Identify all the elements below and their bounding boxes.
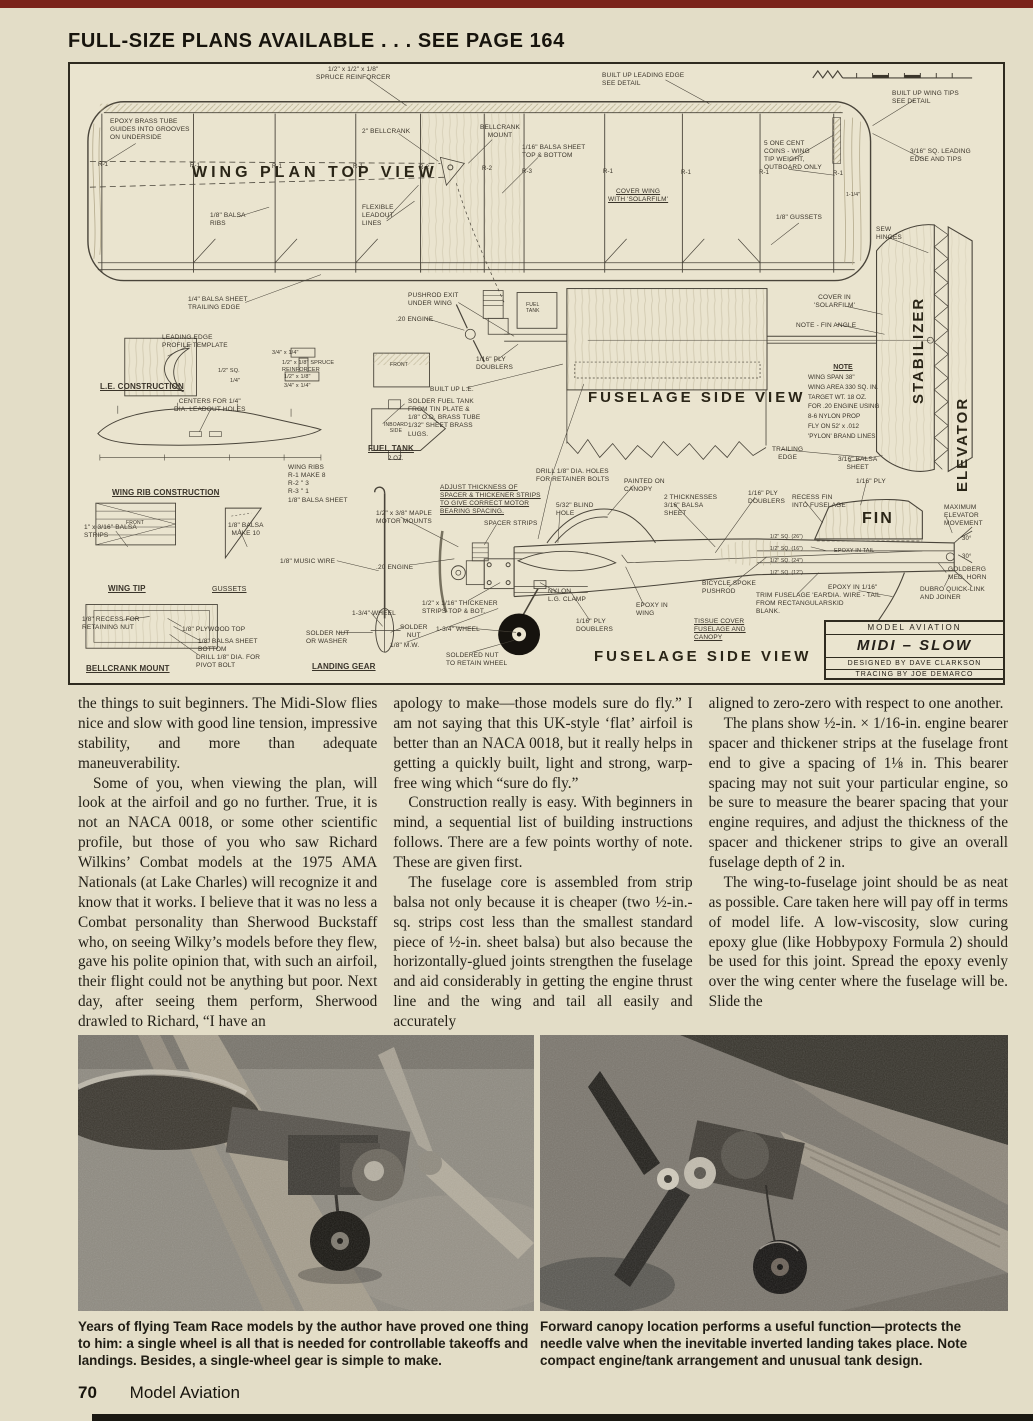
plan-label: R-1 [681, 170, 691, 178]
plan-label: NYLON L.G. CLAMP [548, 588, 586, 604]
plan-label: CENTERS FOR 1/4" DIA. LEADOUT HOLES [174, 398, 246, 414]
paragraph: The wing-to-fuselage joint should be as … [709, 873, 1008, 1012]
plan-label: L.E. CONSTRUCTION [100, 382, 184, 392]
plan-label: FRONT [390, 362, 408, 368]
page-footer: 70 Model Aviation [78, 1383, 240, 1403]
plan-label: 1/2" x 1/8" SPRUCE REINFORCER [282, 360, 334, 374]
page-number: 70 [78, 1383, 97, 1402]
plan-label: 5/32" BLIND HOLE [556, 502, 594, 518]
plan-label: R-3 [522, 169, 532, 177]
plan-label: .20 ENGINE [376, 564, 413, 572]
plan-label: R-1 [353, 164, 363, 172]
plan-label: R-1 [190, 163, 200, 171]
plan-label: BUILT UP L.E. [430, 386, 474, 394]
plan-label: WING RIB CONSTRUCTION [112, 488, 220, 498]
plan-label: 1/2" SQ. (16") [770, 546, 803, 552]
wing-plan-title: WING PLAN TOP VIEW [192, 164, 438, 182]
plan-label: SOLDERED NUT TO RETAIN WHEEL [446, 652, 507, 668]
plan-label: 1/2" x 1/16" THICKENER STRIPS TOP & BOT. [422, 600, 498, 616]
plan-label: 30° [962, 554, 972, 562]
elevator-label: ELEVATOR [954, 397, 971, 492]
plan-label: 1/2" x 1/8" [284, 374, 311, 381]
plan-label: SOLDER NUT OR WASHER [306, 630, 349, 646]
plan-annotation-layer: WING PLAN TOP VIEW FUSELAGE SIDE VIEW FU… [70, 64, 1003, 683]
plan-label: 1/8" MUSIC WIRE [280, 558, 335, 566]
article-body: the things to suit beginners. The Midi-S… [78, 694, 1008, 1032]
plan-label: DUBRO QUICK-LINK AND JOINER [920, 586, 985, 602]
article-column-1: the things to suit beginners. The Midi-S… [78, 694, 377, 1032]
plan-label: 1/8" BALSA RIBS [210, 212, 246, 228]
paragraph: the things to suit beginners. The Midi-S… [78, 694, 377, 774]
plan-label: SOLDER FUEL TANK FROM TIN PLATE & 1/8" O… [408, 398, 480, 439]
paragraph: Some of you, when viewing the plan, will… [78, 774, 377, 1032]
plan-label: BUILT UP WING TIPS SEE DETAIL [892, 90, 959, 106]
plan-label: 2 THICKNESSES 3/16" BALSA SHEET [664, 494, 717, 518]
title-block-designer: DESIGNED BY DAVE CLARKSON [826, 658, 1003, 670]
plan-label: INBOARD SIDE [384, 422, 408, 435]
paragraph: apology to make—those models sure do fly… [393, 694, 692, 793]
plan-label: R-1 [759, 170, 769, 178]
plan-label: 3/16" BALSA SHEET [838, 456, 877, 472]
paragraph: The fuselage core is assembled from stri… [393, 873, 692, 1032]
magazine-name: Model Aviation [130, 1383, 240, 1402]
plan-label: WING RIBS R-1 MAKE 8 R-2 " 3 R-3 " 1 1/8… [288, 464, 348, 505]
plan-label: BELLCRANK MOUNT [86, 664, 170, 674]
plan-label: SOLDER NUT [400, 624, 428, 640]
plan-label: 1/8" M.W. [390, 642, 419, 650]
fin-label: FIN [862, 510, 894, 528]
plan-label: 1-3/4" WHEEL [436, 626, 480, 634]
plan-label: 1/16" PLY [856, 478, 886, 486]
plan-label: EPOXY IN WING [636, 602, 668, 618]
plan-label: 1/8" BALSA SHEET BOTTOM [198, 638, 258, 654]
plan-label: 3/4" x 1/4" [284, 383, 311, 390]
plan-label: 2 OZ. [388, 456, 404, 464]
plan-label: 1/16" BALSA SHEET TOP & BOTTOM [522, 144, 585, 160]
plan-note-block: NOTE WING SPAN 38" WING AREA 330 SQ. IN.… [808, 364, 904, 441]
plan-label: GUSSETS [212, 586, 247, 595]
plan-label: 1/2" SQ. (24") [770, 558, 803, 564]
title-block-tracer: TRACING BY JOE DEMARCO [826, 670, 1003, 680]
plan-label: R-2 [482, 166, 492, 174]
plan-label: FLEXIBLE LEADOUT LINES [362, 204, 394, 228]
plan-label: 1/8" GUSSETS [776, 214, 822, 222]
plan-label: EPOXY BRASS TUBE GUIDES INTO GROOVES ON … [110, 118, 190, 142]
plan-label: R-1 [603, 169, 613, 177]
plan-label: 1/16" PLY DOUBLERS [476, 356, 513, 372]
paragraph: The plans show ½-in. × 1/16-in. engine b… [709, 714, 1008, 873]
plan-label: 1/2" SQ. (12") [770, 570, 803, 576]
plan-label: 1/4" [230, 378, 240, 385]
plan-label: 1/8" RECESS FOR RETAINING NUT [82, 616, 140, 632]
plan-label: COVER IN 'SOLARFILM' [814, 294, 855, 310]
photo-left [78, 1035, 534, 1316]
plan-label: 3/4" x 1/4" [272, 350, 299, 357]
plan-label: SPACER STRIPS [484, 520, 537, 528]
plan-label: 3/16" SQ. LEADING EDGE AND TIPS [910, 148, 971, 164]
plan-label: FRONT [126, 520, 144, 526]
plan-title-block: MODEL AVIATION MIDI – SLOW DESIGNED BY D… [824, 620, 1005, 680]
fuselage-side-view-lower-title: FUSELAGE SIDE VIEW [594, 648, 811, 665]
plan-label: 30° [962, 536, 972, 544]
plan-label: COVER WING WITH 'SOLARFILM' [608, 188, 668, 204]
plan-label: 1" x 3/16" BALSA STRIPS [84, 524, 137, 540]
plan-label: 1/2" SQ. (26") [770, 534, 803, 540]
photo-right [540, 1035, 1008, 1316]
stabilizer-label: STABILIZER [910, 297, 927, 404]
plan-label: TRIM FUSELAGE 'EAR' FROM RECTANGULAR BLA… [756, 592, 829, 616]
plan-label: 1-3/4" WHEEL [352, 610, 396, 618]
plan-label: 1/16" PLY DOUBLERS [576, 618, 613, 634]
plan-label: BUILT UP LEADING EDGE SEE DETAIL [602, 72, 684, 88]
plan-label: PAINTED ON CANOPY [624, 478, 665, 494]
plan-label: .20 ENGINE [396, 316, 433, 324]
plan-label: EPOXY IN TAIL [834, 548, 874, 555]
plan-label: BELLCRANK MOUNT [480, 124, 520, 140]
plan-label: FUEL TANK [368, 444, 414, 454]
plan-label: LEADING EDGE PROFILE TEMPLATE [162, 334, 228, 350]
photo-left-caption: Years of flying Team Race models by the … [78, 1318, 538, 1369]
plan-label: TISSUE COVER FUSELAGE AND CANOPY [694, 618, 746, 642]
plan-label: DRILL 1/8" DIA. FOR PIVOT BOLT [196, 654, 260, 670]
title-block-magazine: MODEL AVIATION [826, 622, 1003, 635]
page-bottom-edge [92, 1414, 1033, 1421]
plan-label: GOLDBERG MED. HORN [948, 566, 987, 582]
plan-label: SEW HINGES [876, 226, 902, 242]
plan-label: ADJUST THICKNESS OF SPACER & THICKENER S… [440, 484, 541, 517]
photo-right-caption: Forward canopy location performs a usefu… [540, 1318, 1006, 1369]
plan-label: 2" BELLCRANK [362, 128, 410, 136]
plan-label: 1/8" PLYWOOD TOP [182, 626, 245, 634]
plan-label: LANDING GEAR [312, 662, 376, 672]
page-top-edge [0, 0, 1033, 8]
title-block-model-name: MIDI – SLOW [826, 635, 1003, 658]
article-column-2: apology to make—those models sure do fly… [393, 694, 692, 1032]
plan-label: 1-1/4" [846, 192, 860, 198]
page-header: FULL-SIZE PLANS AVAILABLE . . . SEE PAGE… [68, 30, 565, 53]
plan-label: DRILL 1/8" DIA. HOLES FOR RETAINER BOLTS [536, 468, 609, 484]
plan-sheet: WING PLAN TOP VIEW FUSELAGE SIDE VIEW FU… [68, 62, 1005, 685]
plan-label: BICYCLE SPOKE PUSHROD [702, 580, 756, 596]
plan-label: R-1 [272, 164, 282, 172]
note-title: NOTE [808, 364, 878, 371]
fuselage-side-view-upper-title: FUSELAGE SIDE VIEW [588, 389, 805, 406]
plan-label: TRAILING EDGE [772, 446, 803, 462]
plan-label: 1/4" BALSA SHEET TRAILING EDGE [188, 296, 248, 312]
plan-label: R-1 [833, 171, 843, 179]
note-body: WING SPAN 38" WING AREA 330 SQ. IN. TARG… [808, 373, 904, 441]
plan-label: NOTE - FIN ANGLE [796, 322, 856, 330]
plan-label: 1/16" PLY DOUBLERS [748, 490, 785, 506]
plan-label: 1/2" x 3/8" MAPLE MOTOR MOUNTS [376, 510, 432, 526]
plan-label: 5 ONE CENT COINS - WING TIP WEIGHT, OUTB… [764, 140, 822, 173]
plan-label: FUEL TANK [526, 302, 540, 315]
plan-label: 1/2" x 1/2" x 1/8" SPRUCE REINFORCER [316, 66, 390, 82]
plan-label: WING TIP [108, 584, 146, 594]
plan-label: MAXIMUM ELEVATOR MOVEMENT [944, 504, 983, 528]
paragraph: Construction really is easy. With beginn… [393, 793, 692, 873]
plan-label: RECESS FIN INTO FUSELAGE [792, 494, 846, 510]
plan-label: EPOXY IN 1/16" DIA. WIRE - TAIL SKID [828, 584, 881, 608]
plan-label: 1/2" SQ. [218, 368, 240, 375]
plan-label: 1/8" BALSA MAKE 10 [228, 522, 264, 538]
plan-label: R-1 [98, 162, 108, 170]
magazine-page: FULL-SIZE PLANS AVAILABLE . . . SEE PAGE… [0, 0, 1033, 1421]
article-column-3: aligned to zero-zero with respect to one… [709, 694, 1008, 1032]
plan-label: R-2 [419, 165, 429, 173]
paragraph: aligned to zero-zero with respect to one… [709, 694, 1008, 714]
plan-label: PUSHROD EXIT UNDER WING [408, 292, 459, 308]
